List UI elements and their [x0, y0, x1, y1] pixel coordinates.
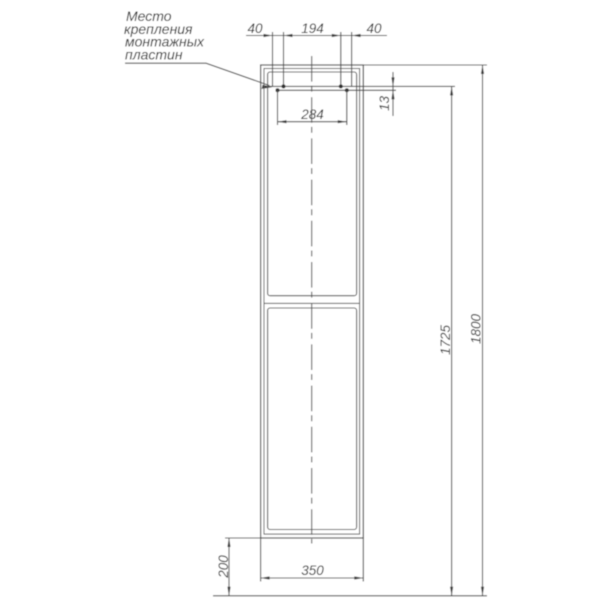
- svg-text:1800: 1800: [469, 313, 484, 344]
- svg-text:13: 13: [377, 96, 392, 112]
- svg-text:200: 200: [216, 555, 231, 579]
- svg-text:40: 40: [366, 21, 382, 36]
- svg-text:40: 40: [247, 21, 263, 36]
- svg-text:350: 350: [301, 563, 324, 578]
- svg-text:пластин: пластин: [125, 46, 183, 62]
- svg-text:194: 194: [301, 21, 324, 36]
- svg-text:1725: 1725: [438, 324, 453, 355]
